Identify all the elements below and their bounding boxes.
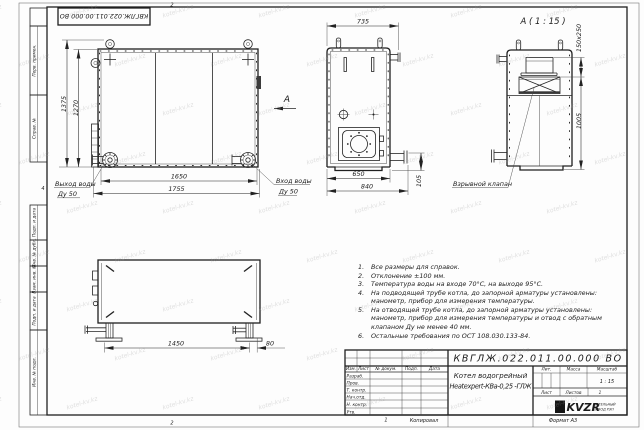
detail-top-pipe <box>497 55 507 64</box>
outlet-label: Выход воды <box>55 180 96 188</box>
company-line1: КОТЕЛЬНЫЙ <box>594 402 616 407</box>
front-view: 1375 1270 1650 1755 Выход воды Ду 50 Вхо… <box>54 40 312 198</box>
burner-door <box>339 128 384 161</box>
dim-1755: 1755 <box>168 185 184 193</box>
dim-1450: 1450 <box>168 340 184 348</box>
inlet-label: Вход воды <box>276 177 312 185</box>
detail-bottom-pipe <box>492 150 508 163</box>
row-razrab: Разраб. <box>347 374 364 380</box>
product-name-line1: Котел водогрейный <box>454 372 528 380</box>
company-logo: KVZR КОТЕЛЬНЫЙ ЗАВОД РЭП <box>555 401 616 415</box>
bottom-pipe-left <box>85 326 106 334</box>
stamp-perv-primen: Перв. примен. <box>32 44 38 76</box>
side-bottom-pipe <box>390 151 407 164</box>
inverted-doc-number-box: КВГЛЖ.022.011.00.000 ВО <box>58 8 150 25</box>
col-list: Лист <box>357 366 369 372</box>
dim-105: 105 <box>415 175 423 187</box>
explosion-valve-label: Взрывной клапан <box>453 180 512 188</box>
side-view: 735 650 840 105 <box>327 18 425 196</box>
dim-1005: 1005 <box>575 113 583 129</box>
logo-mark-icon <box>555 401 565 414</box>
title-block: Изм. Лист № докум. Подп. Дата Разраб. Пр… <box>345 350 627 427</box>
stamp-inv-dubl: Инв. № дубл. <box>32 238 38 267</box>
edge-brackets <box>93 271 99 306</box>
boiler-body-side <box>327 48 390 167</box>
bottom-pipe-right <box>233 326 246 334</box>
side-lug-left <box>336 38 340 48</box>
dim-150x250: 150x250 <box>575 24 583 52</box>
zone-number-bottom-left: 1 <box>384 418 387 424</box>
row-nachotd: Нач.отд. <box>347 395 366 401</box>
company-line2: ЗАВОД РЭП <box>594 408 615 412</box>
side-center-mark-left <box>338 109 350 121</box>
side-center-mark-right <box>369 110 379 120</box>
row-utv: Утв. <box>347 410 356 416</box>
col-sign: Подп. <box>405 366 418 372</box>
stamp-podp-data-2: Подп. и дата <box>32 296 38 326</box>
lit-label: Лит. <box>541 367 552 373</box>
center-mark-left <box>104 54 116 66</box>
lifting-lug-left <box>106 40 115 49</box>
boiler-body-bottom <box>98 260 260 323</box>
note-item: 1.Все размеры для справок. <box>358 263 616 272</box>
technical-notes: 1.Все размеры для справок. 2.Отклонение … <box>358 263 616 340</box>
stamp-podp-data-1: Подп. и дата <box>32 208 38 238</box>
product-name-line2: Heatexpert-КВа-0,25 -ГЛЖ <box>450 383 533 391</box>
inlet-dn-label: Ду 50 <box>278 188 298 196</box>
explosion-valve <box>519 77 560 94</box>
row-tkontr: Т. контр. <box>347 388 367 394</box>
drawing-canvas: Перв. примен. Справ. № Подп. и дата Инв.… <box>0 0 644 430</box>
dim-735: 735 <box>357 18 369 26</box>
view-arrow-letter: А <box>283 95 290 105</box>
note-item: 5.На отводящей трубе котла, до запорной … <box>358 306 616 332</box>
mass-label: Масса <box>567 367 581 373</box>
chimney-duct <box>521 58 557 76</box>
drawing-sheet: Перв. примен. Справ. № Подп. и дата Инв.… <box>0 0 644 430</box>
zone-number-bottom: 2 <box>170 421 173 427</box>
stamp-inv-podl: Инв. № подл. <box>32 357 38 387</box>
bottom-view: 1450 80 <box>85 260 285 353</box>
center-mark-right <box>242 54 254 66</box>
sheets-label: Листов <box>564 390 582 396</box>
stamp-vzam-inv: Взам. инв. № <box>32 264 38 294</box>
col-izm: Изм. <box>346 366 356 372</box>
note-item: 3.Температура воды на входе 70°С, на вых… <box>358 280 616 289</box>
support-leg-left <box>96 323 122 341</box>
zone-number-top: 2 <box>170 3 173 9</box>
sheets-value: 1 <box>599 390 602 396</box>
dim-1375: 1375 <box>60 96 68 112</box>
dim-1270: 1270 <box>72 100 80 116</box>
outlet-flange <box>93 153 118 168</box>
detail-view-a: А ( 1 : 15 ) <box>452 17 585 188</box>
detail-lug-right <box>558 40 562 50</box>
detail-view-title: А ( 1 : 15 ) <box>519 17 565 27</box>
format-label: Формат А3 <box>549 418 577 424</box>
detail-lug-left <box>516 40 520 50</box>
outlet-dn-label: Ду 50 <box>57 190 77 198</box>
dim-1650: 1650 <box>171 173 187 181</box>
dim-650: 650 <box>352 170 364 178</box>
col-date: Дата <box>428 366 440 372</box>
doc-number: КВГЛЖ.022.011.00.000 ВО <box>454 354 622 365</box>
note-item: 6.Остальные требования по ОСТ 108.030.13… <box>358 332 616 341</box>
corner-ticks <box>106 266 252 318</box>
col-doc: № докум. <box>374 366 396 372</box>
inverted-doc-number: КВГЛЖ.022.011.00.000 ВО <box>60 12 148 20</box>
sensor-boss <box>257 76 262 89</box>
side-lug-right <box>378 38 382 48</box>
copied-label: Копировал <box>410 418 439 424</box>
zone-number-left: 4 <box>41 186 44 192</box>
left-stamp-column: Перв. примен. Справ. № Подп. и дата Инв.… <box>30 8 47 415</box>
dim-80: 80 <box>266 340 274 348</box>
scale-label: Масштаб <box>597 367 618 373</box>
note-item: 4.На подводящей трубе котла, до запорной… <box>358 289 616 306</box>
side-top-pipe <box>390 53 400 63</box>
row-prov: Пров. <box>347 381 360 387</box>
note-item: 2.Отклонение ±100 мм. <box>358 272 616 281</box>
row-nkontr: Н. контр. <box>347 402 368 408</box>
stamp-sprav-no: Справ. № <box>32 118 38 139</box>
sheet-label: Лист <box>540 390 552 396</box>
dim-840: 840 <box>361 183 373 191</box>
boiler-body-front <box>98 49 258 167</box>
lifting-lug-right <box>244 40 253 49</box>
scale-value: 1 : 15 <box>600 379 614 385</box>
